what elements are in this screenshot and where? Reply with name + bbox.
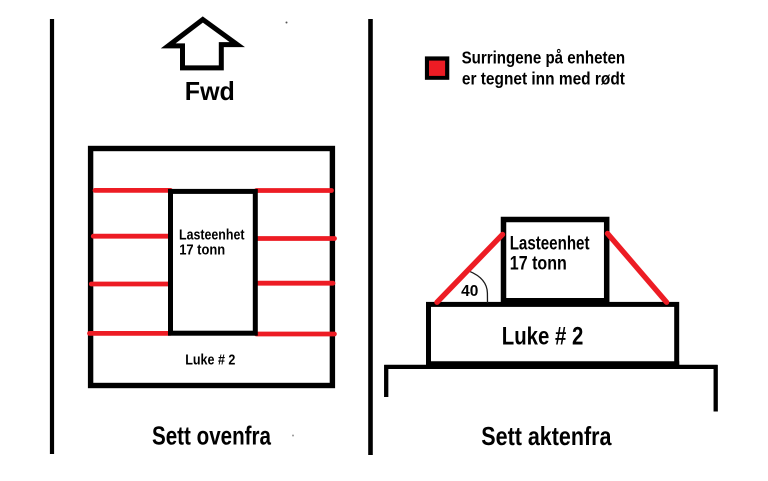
svg-text:17 tonn: 17 tonn <box>179 241 225 258</box>
svg-text:Lasteenhet: Lasteenhet <box>510 234 590 255</box>
svg-text:er tegnet inn med rødt: er tegnet inn med rødt <box>462 68 625 88</box>
svg-text:17 tonn: 17 tonn <box>510 253 567 274</box>
svg-text:Luke # 2: Luke # 2 <box>502 323 584 351</box>
svg-text:Surringene på enheten: Surringene på enheten <box>462 48 625 68</box>
svg-text:Fwd: Fwd <box>185 76 235 106</box>
svg-text:Sett aktenfra: Sett aktenfra <box>481 421 612 451</box>
svg-text:Sett ovenfra: Sett ovenfra <box>152 421 271 451</box>
svg-text:Luke # 2: Luke # 2 <box>185 352 235 369</box>
svg-text:40: 40 <box>461 283 478 300</box>
